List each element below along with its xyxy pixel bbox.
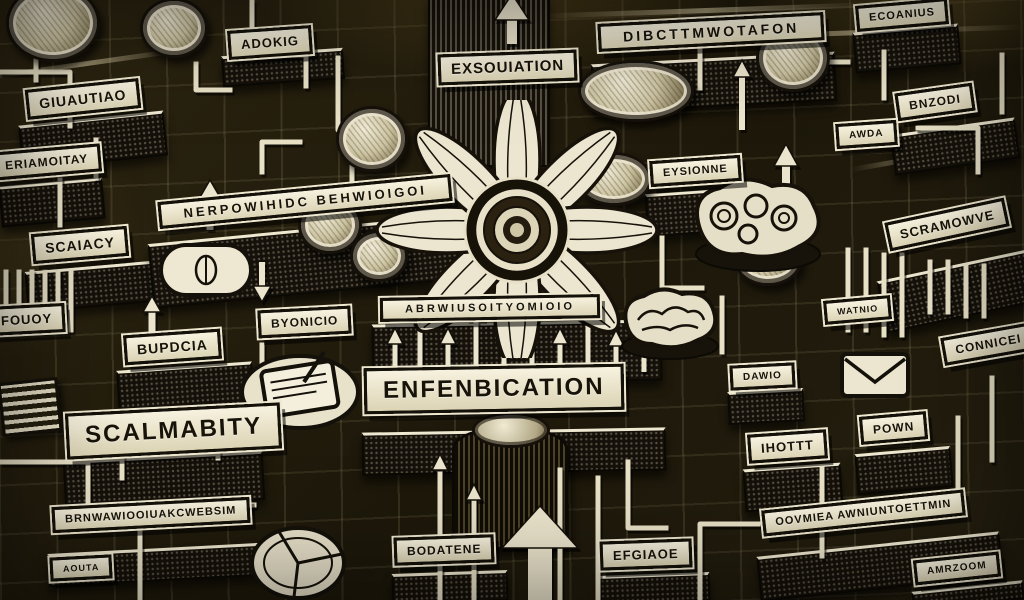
- arrow-up-icon: [733, 60, 751, 130]
- node-ihottt: IHOTTT: [747, 429, 828, 463]
- node-efgiaoe: EFGIAOE: [600, 538, 692, 570]
- engraved-flowchart-illustration: ADOKIG GIUAUTIAO ERIAMOITAY SCAIACY FOUO…: [0, 0, 1024, 600]
- node-adokig: ADOKIG: [227, 25, 313, 60]
- node-byonicio: BYONICIO: [257, 306, 352, 339]
- envelope-icon: [838, 348, 912, 402]
- node-pown: POWN: [859, 411, 929, 445]
- pie-disc-icon: [248, 524, 348, 600]
- node-abrwiusoityomioio: ABRWIUSOITYOMIOIO: [380, 294, 600, 322]
- node-enfenbication: ENFENBICATION: [364, 364, 624, 415]
- node-aouta: AOUTA: [49, 554, 113, 581]
- node-fouoy: FOUOY: [0, 303, 66, 336]
- node-exsouiation: EXSOUIATION: [438, 50, 578, 86]
- node-awda: AWDA: [835, 120, 897, 149]
- gear-cluster-icon: [686, 176, 830, 274]
- seed-node-icon: [158, 242, 254, 300]
- node-dawio: DAWIO: [729, 362, 795, 390]
- arrow-down-icon: [253, 262, 271, 302]
- node-bodatene: BODATENE: [394, 534, 495, 565]
- arrow-up-icon: [502, 506, 578, 600]
- arrow-up-icon: [495, 0, 529, 44]
- coin-icon: [140, 0, 208, 58]
